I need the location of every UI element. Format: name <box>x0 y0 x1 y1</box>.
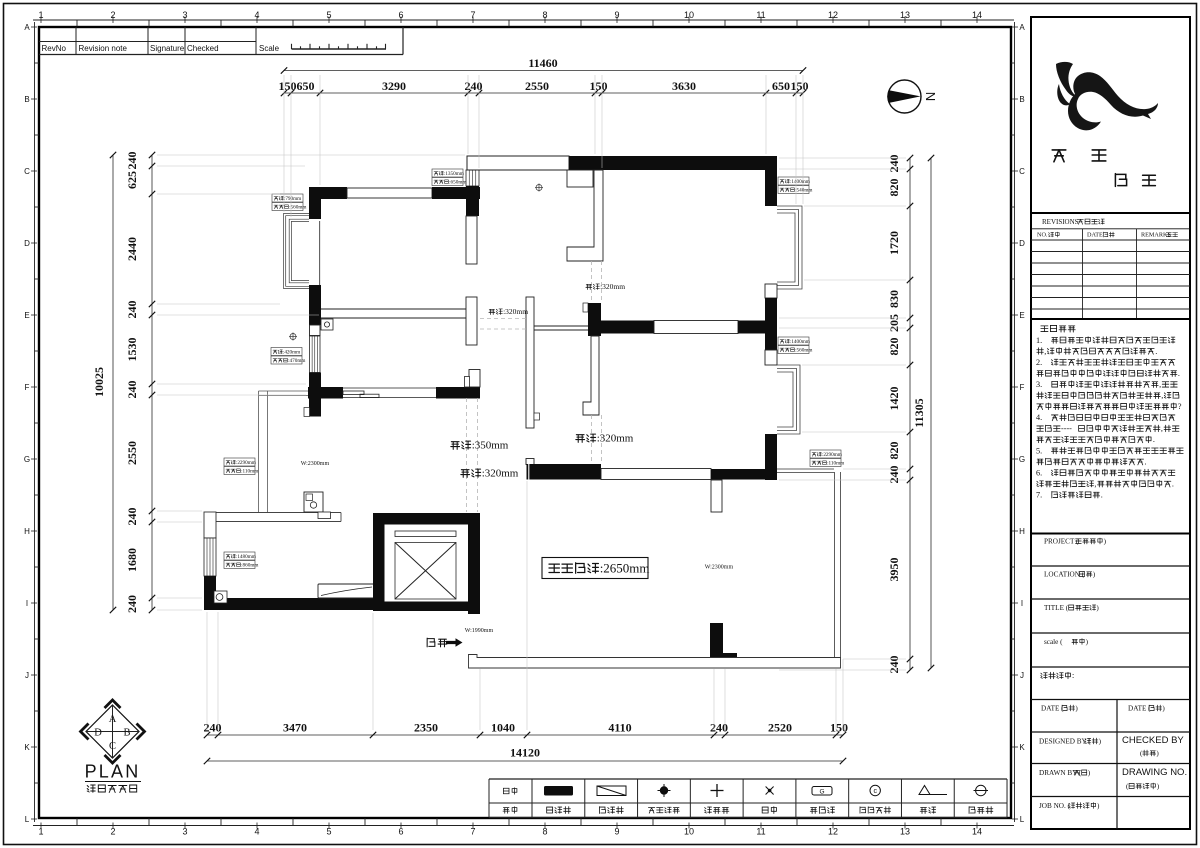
svg-text:2550: 2550 <box>525 79 549 93</box>
svg-text:RevNo: RevNo <box>42 44 67 53</box>
svg-text:13: 13 <box>900 827 910 837</box>
svg-text:.: . <box>1178 369 1180 378</box>
svg-text:C: C <box>1019 167 1025 176</box>
svg-text::790mm: :790mm <box>284 196 301 202</box>
svg-text:10: 10 <box>684 827 694 837</box>
svg-text:11305: 11305 <box>912 398 926 427</box>
svg-text:D: D <box>1019 239 1025 248</box>
svg-text:,: , <box>1159 380 1161 389</box>
svg-text::: : <box>1072 671 1074 680</box>
svg-text:2550: 2550 <box>125 441 139 465</box>
svg-text:B: B <box>123 728 130 739</box>
svg-text::1480mm: :1480mm <box>236 554 256 560</box>
svg-text:PROJECT (: PROJECT ( <box>1044 537 1079 545</box>
svg-text:I: I <box>26 599 28 608</box>
svg-text::320mm: :320mm <box>600 282 625 291</box>
svg-text:.: . <box>1155 347 1157 356</box>
svg-text:,: , <box>1044 347 1046 356</box>
svg-text:1040: 1040 <box>491 721 515 735</box>
svg-text:G: G <box>819 789 824 796</box>
svg-text:B: B <box>1019 95 1024 104</box>
svg-text:LOCATION (: LOCATION ( <box>1044 570 1085 578</box>
svg-text:DATE (: DATE ( <box>1128 704 1151 712</box>
svg-text:4110: 4110 <box>608 721 631 735</box>
svg-text:C: C <box>109 741 116 752</box>
svg-text:E: E <box>24 311 29 320</box>
svg-text:A: A <box>1019 23 1025 32</box>
svg-text:10025: 10025 <box>92 367 106 397</box>
svg-text:820: 820 <box>887 442 901 460</box>
svg-text:E: E <box>1019 311 1024 320</box>
svg-text:,: , <box>1161 424 1163 433</box>
svg-text:1530: 1530 <box>125 338 139 362</box>
svg-text:5: 5 <box>326 827 331 837</box>
svg-text:F: F <box>1020 383 1025 392</box>
svg-text:3950: 3950 <box>887 558 901 582</box>
svg-text:3: 3 <box>182 10 187 20</box>
svg-text:150: 150 <box>830 721 848 735</box>
svg-text:N: N <box>923 92 938 101</box>
svg-text:9: 9 <box>614 827 619 837</box>
svg-text:G: G <box>1019 455 1025 464</box>
svg-text:240: 240 <box>204 721 222 735</box>
svg-text:2440: 2440 <box>125 237 139 261</box>
svg-text:L: L <box>1020 815 1025 824</box>
svg-text:5.: 5. <box>1036 446 1042 455</box>
svg-text:650: 650 <box>772 79 790 93</box>
svg-text:W:2300mm: W:2300mm <box>301 461 330 467</box>
svg-text:14120: 14120 <box>510 746 540 760</box>
svg-text:3470: 3470 <box>283 721 307 735</box>
svg-text:2.: 2. <box>1036 358 1042 367</box>
svg-text::860mm: :860mm <box>241 563 258 569</box>
svg-text:240: 240 <box>125 381 139 399</box>
svg-text:I: I <box>1021 599 1023 608</box>
svg-text:1.: 1. <box>1036 336 1042 345</box>
svg-text:10: 10 <box>684 10 694 20</box>
svg-text:c: c <box>873 788 877 795</box>
svg-text:J: J <box>1020 671 1024 680</box>
svg-text::1400mm: :1400mm <box>790 179 810 185</box>
svg-text:7: 7 <box>470 10 475 20</box>
svg-text:11: 11 <box>756 827 765 837</box>
svg-text:4: 4 <box>254 827 259 837</box>
svg-text:NO.: NO. <box>1037 232 1048 239</box>
svg-text::2650mm: :2650mm <box>600 560 650 575</box>
svg-text:L: L <box>25 815 30 824</box>
svg-text:,: , <box>1094 479 1096 488</box>
svg-text:,: , <box>1161 391 1163 400</box>
svg-text:240: 240 <box>887 155 901 173</box>
svg-text:DATE (: DATE ( <box>1041 704 1064 712</box>
svg-text:2: 2 <box>110 10 115 20</box>
svg-text::560mm: :560mm <box>289 205 306 211</box>
svg-text:F: F <box>25 383 30 392</box>
svg-text:1: 1 <box>38 827 43 837</box>
svg-text:240: 240 <box>125 595 139 613</box>
svg-text:A: A <box>24 23 30 32</box>
svg-text:240: 240 <box>125 152 139 170</box>
svg-text:.: . <box>1172 479 1174 488</box>
svg-text::320mm: :320mm <box>503 307 528 316</box>
svg-text:4.: 4. <box>1036 413 1042 422</box>
svg-text:4: 4 <box>254 10 259 20</box>
svg-text:7.: 7. <box>1036 491 1042 500</box>
svg-text:H: H <box>24 527 30 536</box>
svg-text:3290: 3290 <box>382 79 406 93</box>
svg-text:2: 2 <box>110 827 115 837</box>
svg-text:1720: 1720 <box>887 231 901 255</box>
svg-text:2520: 2520 <box>768 721 792 735</box>
svg-text:.: . <box>1101 491 1103 500</box>
svg-text:?: ? <box>1178 402 1182 411</box>
svg-text:8: 8 <box>542 10 547 20</box>
svg-text:CHECKED BY: CHECKED BY <box>1122 735 1184 746</box>
svg-text:5: 5 <box>326 10 331 20</box>
svg-text:H: H <box>1019 527 1025 536</box>
svg-text:A: A <box>109 714 117 725</box>
svg-text:Checked: Checked <box>187 44 219 53</box>
svg-text:B: B <box>24 95 29 104</box>
svg-text:Revision note: Revision note <box>79 44 128 53</box>
svg-text:8: 8 <box>542 827 547 837</box>
svg-text:K: K <box>24 743 30 752</box>
svg-text::320mm: :320mm <box>482 468 519 480</box>
svg-text:240: 240 <box>465 79 483 93</box>
svg-text:240: 240 <box>125 301 139 319</box>
svg-text:240: 240 <box>710 721 728 735</box>
svg-text:150: 150 <box>791 79 809 93</box>
svg-text:12: 12 <box>828 10 838 20</box>
svg-text:6: 6 <box>398 10 403 20</box>
svg-text:240: 240 <box>125 508 139 526</box>
svg-text:150: 150 <box>590 79 608 93</box>
svg-text:240: 240 <box>887 466 901 484</box>
svg-text:625: 625 <box>125 171 139 189</box>
svg-text:3: 3 <box>182 827 187 837</box>
svg-text:W:1990mm: W:1990mm <box>465 628 494 634</box>
svg-text:3.: 3. <box>1036 380 1042 389</box>
svg-text::2290mm: :2290mm <box>822 452 842 458</box>
svg-text:J: J <box>25 671 29 680</box>
svg-text:9: 9 <box>614 10 619 20</box>
svg-text::110mm: :110mm <box>827 461 844 467</box>
svg-text::2290mm: :2290mm <box>236 460 256 466</box>
svg-text:240: 240 <box>887 656 901 674</box>
svg-text::560mm: :560mm <box>795 348 812 354</box>
svg-text:830: 830 <box>887 290 901 308</box>
svg-text:150: 150 <box>279 79 297 93</box>
svg-text:205: 205 <box>887 314 901 332</box>
svg-text::350mm: :350mm <box>472 440 509 452</box>
svg-text:K: K <box>1019 743 1025 752</box>
svg-text::1350mm: :1350mm <box>444 171 464 177</box>
svg-text:D: D <box>24 239 30 248</box>
svg-text:12: 12 <box>828 827 838 837</box>
svg-text:13: 13 <box>900 10 910 20</box>
svg-text:Signature: Signature <box>150 44 185 53</box>
svg-text:TITLE (: TITLE ( <box>1044 604 1069 612</box>
svg-text:D: D <box>94 728 102 739</box>
svg-text:Scale: Scale <box>259 44 280 53</box>
svg-text:14: 14 <box>972 10 982 20</box>
svg-text:1680: 1680 <box>125 548 139 572</box>
svg-text::470mm: :470mm <box>288 358 305 364</box>
svg-text:820: 820 <box>887 179 901 197</box>
svg-text:11: 11 <box>756 10 765 20</box>
svg-text:G: G <box>24 455 30 464</box>
svg-text:14: 14 <box>972 827 982 837</box>
svg-text:DESIGNED BY (: DESIGNED BY ( <box>1039 737 1091 745</box>
svg-text:W:2300mm: W:2300mm <box>705 565 734 571</box>
svg-text::320mm: :320mm <box>597 433 634 445</box>
svg-text:11460: 11460 <box>528 56 557 70</box>
svg-text:REVISIONS: REVISIONS <box>1042 218 1079 226</box>
svg-text:DATE: DATE <box>1087 232 1103 239</box>
svg-text:PLAN: PLAN <box>85 762 141 782</box>
svg-text::420mm: :420mm <box>283 350 300 356</box>
svg-text:C: C <box>24 167 30 176</box>
svg-text:.: . <box>1145 457 1147 466</box>
svg-text:650: 650 <box>297 79 315 93</box>
svg-text::110mm: :110mm <box>241 469 258 475</box>
svg-text:----: ---- <box>1061 424 1072 433</box>
svg-text:7: 7 <box>470 827 475 837</box>
svg-text:1420: 1420 <box>887 387 901 411</box>
svg-text:3630: 3630 <box>672 79 696 93</box>
svg-text:2350: 2350 <box>414 721 438 735</box>
svg-text:1: 1 <box>38 10 43 20</box>
svg-text:JOB NO. (: JOB NO. ( <box>1039 802 1071 810</box>
svg-text::650mm: :650mm <box>449 180 466 186</box>
svg-text::1400mm: :1400mm <box>790 339 810 345</box>
svg-text::540mm: :540mm <box>795 188 812 194</box>
svg-text:6.: 6. <box>1036 468 1042 477</box>
svg-text:DRAWING NO.: DRAWING NO. <box>1122 767 1187 778</box>
svg-text:6: 6 <box>398 827 403 837</box>
svg-text:820: 820 <box>887 338 901 356</box>
svg-text:scale (: scale ( <box>1044 638 1063 646</box>
svg-text:.: . <box>1153 435 1155 444</box>
